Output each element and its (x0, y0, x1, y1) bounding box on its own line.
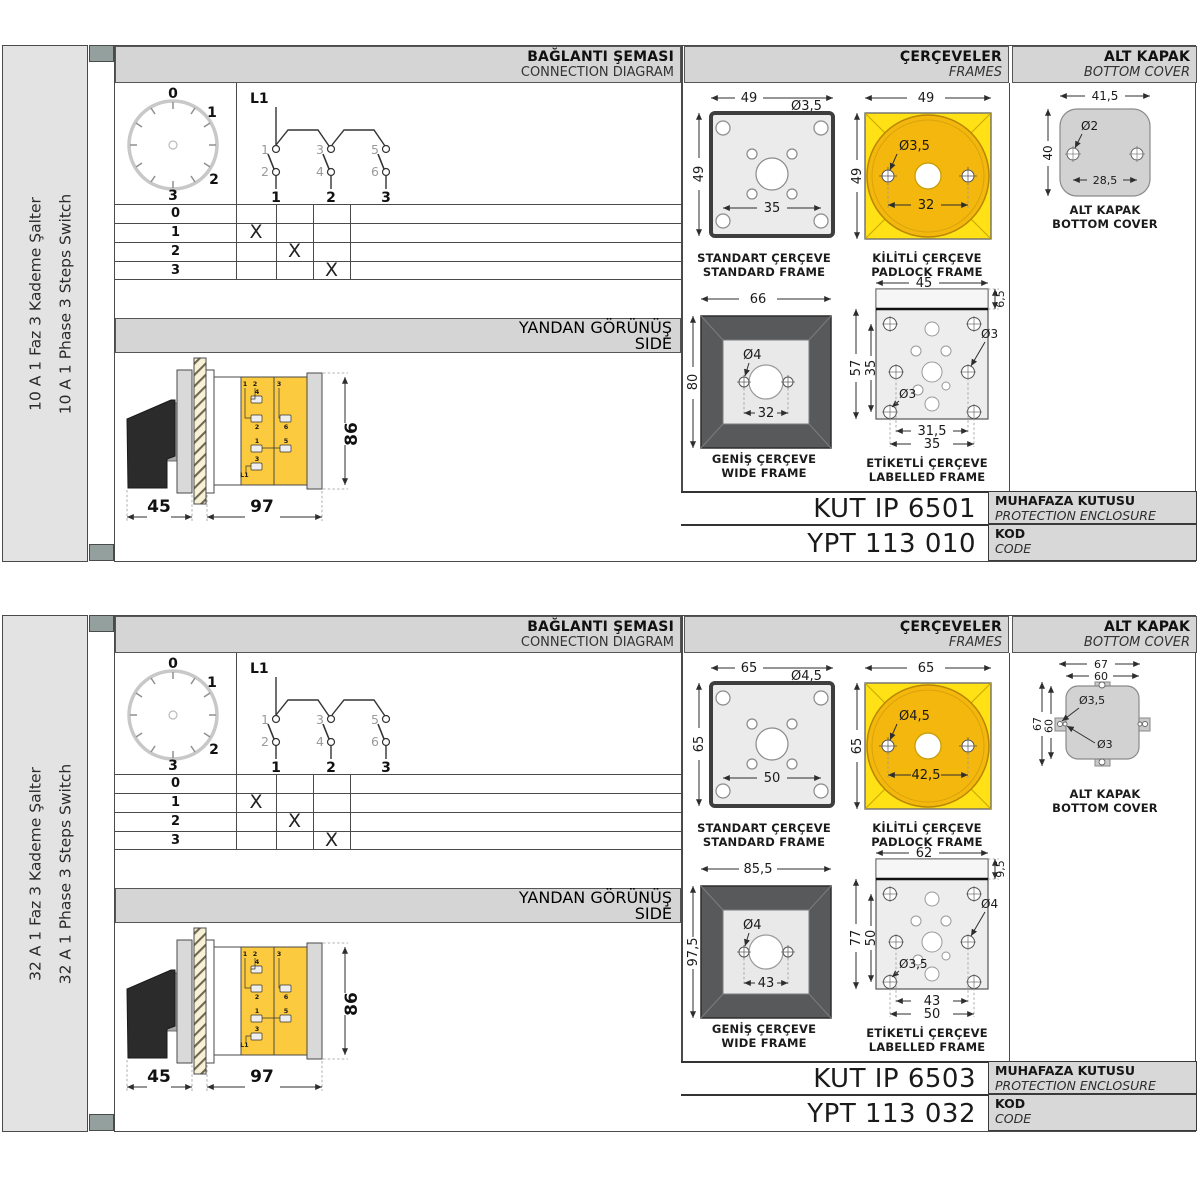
inner-height-dimension: 50 (864, 930, 879, 947)
column-divider (1009, 83, 1010, 491)
height-dimension: 57 (849, 360, 864, 377)
handle-dimension: 45 (147, 497, 171, 517)
wide-frame-title: GENİŞ ÇERÇEVE WIDE FRAME (684, 453, 844, 480)
table-line (350, 204, 351, 279)
header-title-en: SIDE (116, 906, 672, 922)
output-leads (276, 746, 386, 759)
terminal-number: 1 (261, 142, 269, 157)
hole-diameter: Ø2 (1081, 119, 1098, 133)
wide-frame-drawing: 66 Ø4 32 80 (687, 291, 843, 457)
terminal-number: 3 (316, 712, 324, 727)
header-title-en: BOTTOM COVER (1013, 635, 1190, 651)
header-title-tr: BAĞLANTI ŞEMASI (116, 619, 674, 635)
terminal-label: L1 (240, 471, 249, 479)
wide-frame-title: GENİŞ ÇERÇEVE WIDE FRAME (684, 1023, 844, 1050)
contact-closed-mark: X (236, 793, 276, 812)
connection-diagram-header: BAĞLANTI ŞEMASI CONNECTION DIAGRAM (115, 616, 681, 653)
switch-schematic-drawing: L1 1 2 3 4 5 6 1 2 3 (236, 653, 456, 774)
terminal-label: 6 (284, 993, 289, 1001)
height-dimension: 77 (849, 930, 864, 947)
width-dimension: 65 (918, 661, 935, 676)
header-title-tr: YANDAN GÖRÜNÜŞ (116, 320, 672, 336)
terminal-label: 2 (253, 950, 258, 958)
body-dimension: 97 (250, 1067, 274, 1087)
table-row-label: 2 (115, 812, 236, 831)
terminal-number: 6 (371, 164, 379, 179)
pitch-dimension: 43 (758, 976, 775, 991)
header-title-en: FRAMES (685, 65, 1002, 81)
rotary-dial-drawing: 0 1 2 3 (115, 653, 236, 774)
datasheet-panel: BAĞLANTI ŞEMASI CONNECTION DIAGRAM ÇERÇE… (114, 45, 1196, 562)
standard-frame-title: STANDART ÇERÇEVE STANDARD FRAME (684, 822, 844, 849)
pitch2-dimension: 35 (924, 437, 941, 452)
terminal-number: 2 (261, 734, 269, 749)
table-row-label: 3 (115, 831, 236, 850)
width-dimension: 41,5 (1092, 89, 1119, 103)
product-sidebar: 10 A 1 Faz 3 Kademe Şalter 10 A 1 Phase … (2, 45, 88, 562)
padlock-frame-drawing: 65 Ø4,5 42,5 65 (849, 656, 1005, 820)
contact-closed-mark: X (236, 223, 276, 242)
binding-clip-top (89, 615, 114, 632)
pitch-dimension: 32 (758, 406, 775, 421)
labelled-frame-title: ETİKETLİ ÇERÇEVE LABELLED FRAME (846, 1027, 1008, 1054)
terminal-number: 3 (316, 142, 324, 157)
band-dimension: 9,5 (994, 860, 1007, 878)
terminal-label: 1 (243, 950, 248, 958)
terminal-label: 5 (284, 437, 289, 445)
hole-diameter: Ø3,5 (899, 139, 930, 154)
height-dimension: 49 (692, 166, 707, 183)
hole-side-diameter: Ø3 (1097, 738, 1113, 751)
terminal-label: 4 (255, 958, 260, 966)
band-dimension: 6,5 (994, 290, 1007, 308)
switch-schematic-drawing: L1 1 2 3 4 5 6 1 2 3 (236, 83, 456, 204)
code-label: KOD CODE (988, 1094, 1197, 1131)
product-name-english: 10 A 1 Phase 3 Steps Switch (56, 46, 76, 563)
terminal-number: 4 (316, 164, 324, 179)
side-view-drawing: 1 2 3 4 2 1 3 6 5 L1 86 45 97 (115, 351, 681, 526)
terminal-label: 3 (277, 380, 282, 388)
header-title-tr: BAĞLANTI ŞEMASI (116, 49, 674, 65)
height-dimension: 40 (1041, 145, 1055, 160)
product-block: 10 A 1 Faz 3 Kademe Şalter 10 A 1 Phase … (2, 45, 1196, 562)
wide-frame-drawing: 85,5 Ø4 43 97,5 (687, 861, 843, 1027)
height-dimension: 49 (850, 168, 865, 185)
pitch-dimension: 35 (764, 201, 781, 216)
hole-diameter: Ø4,5 (899, 709, 930, 724)
binding-clip-top (89, 45, 114, 62)
inner-height-dimension: 35 (864, 360, 879, 377)
terminal-label: L1 (240, 1041, 249, 1049)
product-name-english: 32 A 1 Phase 3 Steps Switch (56, 616, 76, 1133)
height-dimension: 86 (342, 992, 362, 1016)
pitch-dimension: 28,5 (1093, 174, 1118, 187)
dial-position-2: 2 (209, 172, 219, 188)
table-line (350, 774, 351, 849)
inner-height-dimension: 60 (1043, 719, 1056, 733)
height-dimension: 65 (692, 736, 707, 753)
header-title-en: CONNECTION DIAGRAM (116, 635, 674, 651)
hole-diameter-right: Ø4 (981, 897, 998, 911)
contact-closed-mark: X (276, 812, 313, 831)
bottom-cover-header: ALT KAPAK BOTTOM COVER (1012, 616, 1197, 653)
header-title-tr: ALT KAPAK (1013, 49, 1190, 65)
contact-closed-mark: X (313, 831, 350, 850)
height-dimension: 65 (850, 738, 865, 755)
table-line (236, 83, 237, 279)
terminal-label: 1 (243, 380, 248, 388)
labelled-frame-title: ETİKETLİ ÇERÇEVE LABELLED FRAME (846, 457, 1008, 484)
terminal-number: 2 (261, 164, 269, 179)
dial-position-3: 3 (168, 188, 178, 204)
terminal-number: 5 (371, 142, 379, 157)
table-row-label: 1 (115, 793, 236, 812)
output-leads (276, 176, 386, 189)
header-title-tr: ÇERÇEVELER (685, 619, 1002, 635)
hole-diameter: Ø4 (743, 348, 762, 363)
terminal-label: 6 (284, 423, 289, 431)
table-row-label: 3 (115, 261, 236, 280)
hole-diameter-inner: Ø3 (899, 387, 916, 401)
catalog-page: 10 A 1 Faz 3 Kademe Şalter 10 A 1 Phase … (0, 0, 1200, 1200)
hole-top-diameter: Ø3,5 (1079, 694, 1105, 707)
table-row-label: 0 (115, 204, 236, 223)
table-line (236, 653, 237, 849)
product-name-turkish: 32 A 1 Faz 3 Kademe Şalter (26, 616, 46, 1133)
header-title-en: SIDE (116, 336, 672, 352)
table-row-label: 2 (115, 242, 236, 261)
header-title-tr: ÇERÇEVELER (685, 49, 1002, 65)
code-label: KOD CODE (988, 524, 1197, 561)
header-title-tr: ALT KAPAK (1013, 619, 1190, 635)
pitch-dimension: 32 (918, 198, 935, 213)
feed-label: L1 (250, 91, 269, 107)
dial-position-3: 3 (168, 758, 178, 774)
table-row-label: 0 (115, 774, 236, 793)
frames-header: ÇERÇEVELER FRAMES (684, 46, 1009, 83)
body-dimension: 97 (250, 497, 274, 517)
terminal-label: 4 (255, 388, 260, 396)
height-dimension: 86 (342, 422, 362, 446)
header-title-tr: YANDAN GÖRÜNÜŞ (116, 890, 672, 906)
binding-clip-bottom (89, 1114, 114, 1131)
standard-frame-title: STANDART ÇERÇEVE STANDARD FRAME (684, 252, 844, 279)
terminal-label: 2 (255, 993, 260, 1001)
pitch-dimension: 50 (764, 771, 781, 786)
height-dimension: 80 (686, 374, 701, 391)
dial-position-0: 0 (168, 86, 178, 102)
product-sidebar: 32 A 1 Faz 3 Kademe Şalter 32 A 1 Phase … (2, 615, 88, 1132)
terminal-label: 5 (284, 1007, 289, 1015)
product-code: YPT 113 032 (681, 1094, 988, 1131)
width-dimension: 85,5 (744, 862, 773, 877)
dial-position-2: 2 (209, 742, 219, 758)
standard-frame-drawing: 65 Ø4,5 65 50 (687, 656, 843, 820)
column-divider (681, 616, 683, 1131)
hole-diameter-inner: Ø3,5 (899, 957, 928, 971)
terminal-number: 6 (371, 734, 379, 749)
side-view-drawing: 1 2 3 4 2 1 3 6 5 L1 86 45 97 (115, 921, 681, 1096)
enclosure-code: KUT IP 6501 (681, 491, 988, 524)
dial-position-0: 0 (168, 656, 178, 672)
datasheet-panel: BAĞLANTI ŞEMASI CONNECTION DIAGRAM ÇERÇE… (114, 615, 1196, 1132)
column-divider (1009, 653, 1010, 1061)
terminal-number: 5 (371, 712, 379, 727)
enclosure-code: KUT IP 6503 (681, 1061, 988, 1094)
pitch2-dimension: 50 (924, 1007, 941, 1022)
bottom-cover-title: ALT KAPAK BOTTOM COVER (1010, 204, 1200, 231)
dial-position-1: 1 (207, 675, 217, 691)
height-dimension: 97,5 (686, 938, 701, 967)
terminal-label: 3 (255, 455, 260, 463)
inner-width-dimension: 60 (1094, 670, 1108, 683)
column-divider (681, 46, 683, 561)
table-row-label: 1 (115, 223, 236, 242)
rotary-dial-drawing: 0 1 2 3 (115, 83, 236, 204)
binding-clip-bottom (89, 544, 114, 561)
contact-closed-mark: X (313, 261, 350, 280)
frames-header: ÇERÇEVELER FRAMES (684, 616, 1009, 653)
binding-strip (88, 615, 114, 1132)
width-dimension: 49 (918, 91, 935, 106)
width-dimension: 66 (750, 292, 767, 307)
labelled-frame-drawing: 62 9,5 (847, 844, 1007, 1026)
standard-frame-drawing: 49 Ø3,5 49 35 (687, 86, 843, 250)
dial-position-1: 1 (207, 105, 217, 121)
header-title-en: FRAMES (685, 635, 1002, 651)
hole-diameter: Ø4 (743, 918, 762, 933)
hole-diameter-right: Ø3 (981, 327, 998, 341)
terminal-label: 1 (255, 1007, 260, 1015)
width-dimension: 49 (741, 91, 758, 106)
enclosure-label: MUHAFAZA KUTUSU PROTECTION ENCLOSURE (988, 1061, 1197, 1094)
terminal-number: 1 (261, 712, 269, 727)
side-view-header: YANDAN GÖRÜNÜŞ SIDE (115, 318, 681, 353)
header-title-en: CONNECTION DIAGRAM (116, 65, 674, 81)
terminal-label: 3 (255, 1025, 260, 1033)
side-view-header: YANDAN GÖRÜNÜŞ SIDE (115, 888, 681, 923)
enclosure-label: MUHAFAZA KUTUSU PROTECTION ENCLOSURE (988, 491, 1197, 524)
contact-blades (268, 154, 384, 169)
labelled-frame-drawing: 45 6,5 (847, 274, 1007, 456)
contact-closed-mark: X (276, 242, 313, 261)
bottom-cover-header: ALT KAPAK BOTTOM COVER (1012, 46, 1197, 83)
terminal-label: 1 (255, 437, 260, 445)
handle-dimension: 45 (147, 1067, 171, 1087)
contact-blades (268, 724, 384, 739)
terminal-number: 4 (316, 734, 324, 749)
header-title-en: BOTTOM COVER (1013, 65, 1190, 81)
terminal-label: 2 (255, 423, 260, 431)
pitch-dimension: 42,5 (912, 768, 941, 783)
width-dimension: 65 (741, 661, 758, 676)
product-block: 32 A 1 Faz 3 Kademe Şalter 32 A 1 Phase … (2, 615, 1196, 1132)
bottom-cover-title: ALT KAPAK BOTTOM COVER (1010, 788, 1200, 815)
product-code: YPT 113 010 (681, 524, 988, 561)
terminal-label: 3 (277, 950, 282, 958)
product-name-turkish: 10 A 1 Faz 3 Kademe Şalter (26, 46, 46, 563)
feed-label: L1 (250, 661, 269, 677)
padlock-frame-drawing: 49 Ø3,5 32 49 (849, 86, 1005, 250)
terminal-label: 2 (253, 380, 258, 388)
connection-diagram-header: BAĞLANTI ŞEMASI CONNECTION DIAGRAM (115, 46, 681, 83)
binding-strip (88, 45, 114, 562)
